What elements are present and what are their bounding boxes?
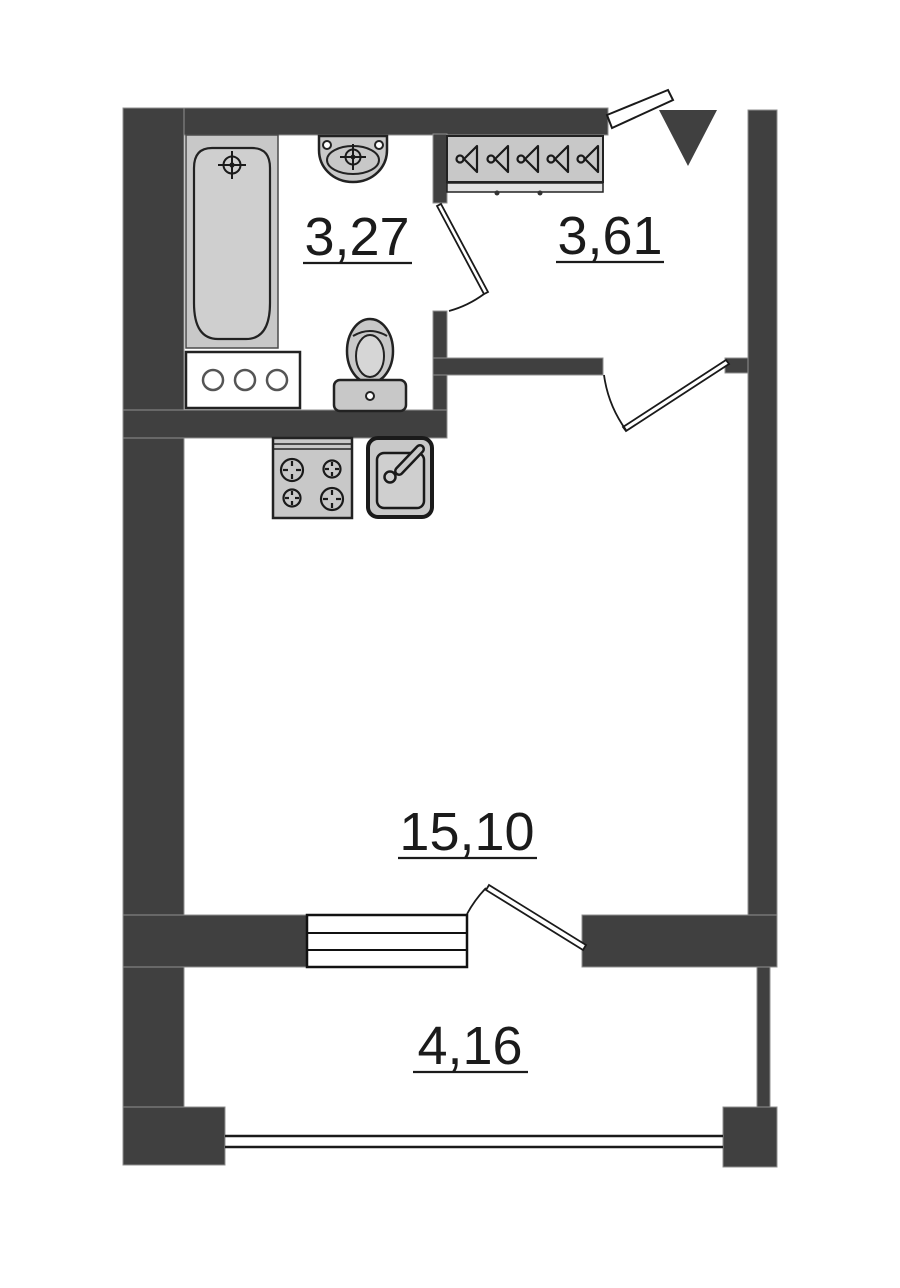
window — [307, 915, 467, 967]
toilet — [334, 319, 406, 411]
bathroom-door-leaf — [437, 204, 488, 294]
floor-plan-drawing: 3,27 3,61 15,10 4,16 — [0, 0, 900, 1288]
room-door-arc — [604, 375, 626, 430]
wall-bathroom-bottom — [123, 410, 447, 438]
entrance-arrow-icon — [659, 110, 717, 166]
washing-cabinet — [186, 352, 300, 408]
wall-room-bottom-right — [582, 915, 777, 967]
wall-top — [123, 108, 608, 135]
wardrobe — [447, 136, 603, 196]
balcony-door-arc — [467, 888, 486, 914]
sink-drain — [385, 472, 396, 483]
wall-balcony-block-left — [123, 1107, 225, 1165]
hallway-area-label: 3,61 — [557, 206, 662, 266]
balcony-railing — [225, 1136, 723, 1147]
wall-balcony-right — [757, 967, 770, 1107]
wall-room-bottom-left — [123, 915, 307, 967]
bathroom-area-label: 3,27 — [304, 207, 409, 267]
balcony-area-label: 4,16 — [417, 1016, 522, 1076]
entrance-door-leaf — [607, 90, 673, 128]
wall-hallway-door-stub — [725, 358, 748, 373]
wall-balcony-block-right — [723, 1107, 777, 1167]
bathtub — [186, 135, 278, 348]
stove — [273, 438, 352, 518]
wall-right — [748, 110, 777, 967]
room-door-leaf — [623, 360, 729, 431]
wall-hallway-bottom — [433, 358, 603, 375]
wall-bath-hall-upper — [433, 134, 447, 203]
floor-plan-page: 3,27 3,61 15,10 4,16 — [0, 0, 900, 1288]
living-room-area-label: 15,10 — [399, 802, 534, 862]
bathroom-door-arc — [449, 294, 484, 311]
kitchen-sink — [368, 438, 432, 517]
wash-basin — [319, 136, 387, 182]
balcony-door-leaf — [486, 885, 586, 950]
